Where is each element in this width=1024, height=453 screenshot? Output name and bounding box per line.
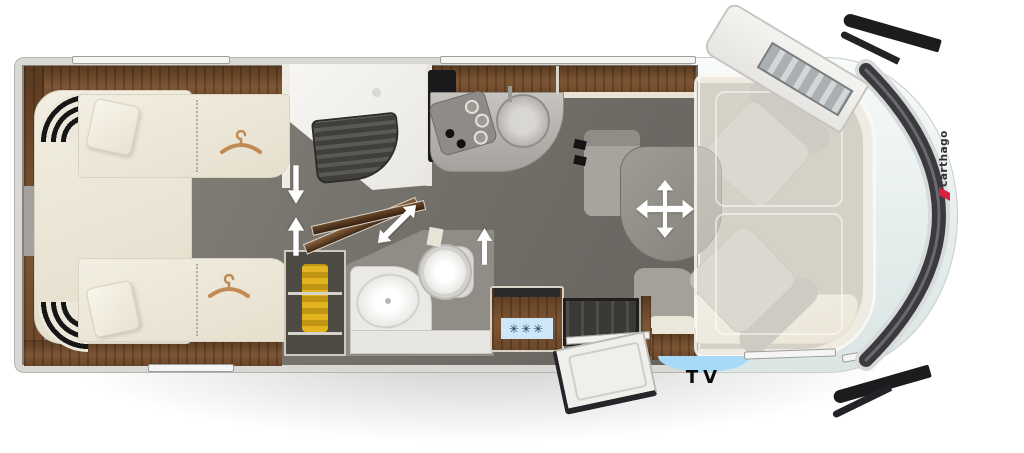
snowflake-icon: ✳✳✳ (509, 322, 545, 336)
mattress-seam-top (196, 100, 198, 172)
burner-icon (473, 112, 490, 129)
move-table-icon (634, 178, 696, 240)
dinette-seat-back (584, 130, 640, 146)
window-kitchen-top (440, 56, 696, 64)
wardrobe-rod (288, 292, 342, 295)
entry-door-panel (568, 341, 648, 401)
freezer-panel: ✳✳✳ (501, 318, 553, 339)
kitchen-sink (496, 94, 550, 148)
locker-divider (556, 66, 559, 94)
burner-icon (463, 98, 480, 115)
burner-icon (472, 129, 489, 146)
wiper-blade-top (842, 12, 942, 52)
refrigerator: ✳✳✳ (490, 286, 564, 352)
shoe-cabinet-top (652, 318, 694, 334)
shower-head-icon (372, 88, 381, 97)
basin-drain (385, 298, 391, 304)
hanger-icon (218, 130, 264, 158)
arrow-up-icon (476, 226, 493, 266)
tv-label: TV (664, 367, 744, 388)
brand-logo: carthago (936, 118, 952, 210)
arrow-up-icon (287, 214, 305, 258)
washroom-lower-counter (350, 330, 492, 354)
drop-bed-panel (715, 213, 843, 335)
hob-knob (444, 128, 455, 139)
logo-text: carthago (938, 130, 950, 187)
window-rear-bottom (148, 364, 234, 372)
logo-accent (939, 187, 950, 201)
mattress-seam-bottom (196, 264, 198, 336)
window-rear-top (72, 56, 230, 64)
sink-faucet (508, 86, 512, 102)
wardrobe (284, 250, 346, 356)
hanger-icon (206, 274, 252, 302)
overhead-lockers-kitchen (432, 66, 696, 94)
pillow-bottom-bed (85, 280, 140, 338)
fridge-vent (494, 288, 560, 297)
windshield (842, 58, 964, 372)
arrow-down-icon (287, 163, 305, 207)
toilet (420, 246, 470, 298)
hanging-clothes (302, 264, 328, 332)
hob-knob (456, 138, 467, 149)
floorplan-canvas: ✳✳✳ (0, 0, 1024, 453)
wardrobe-rod (288, 332, 342, 335)
